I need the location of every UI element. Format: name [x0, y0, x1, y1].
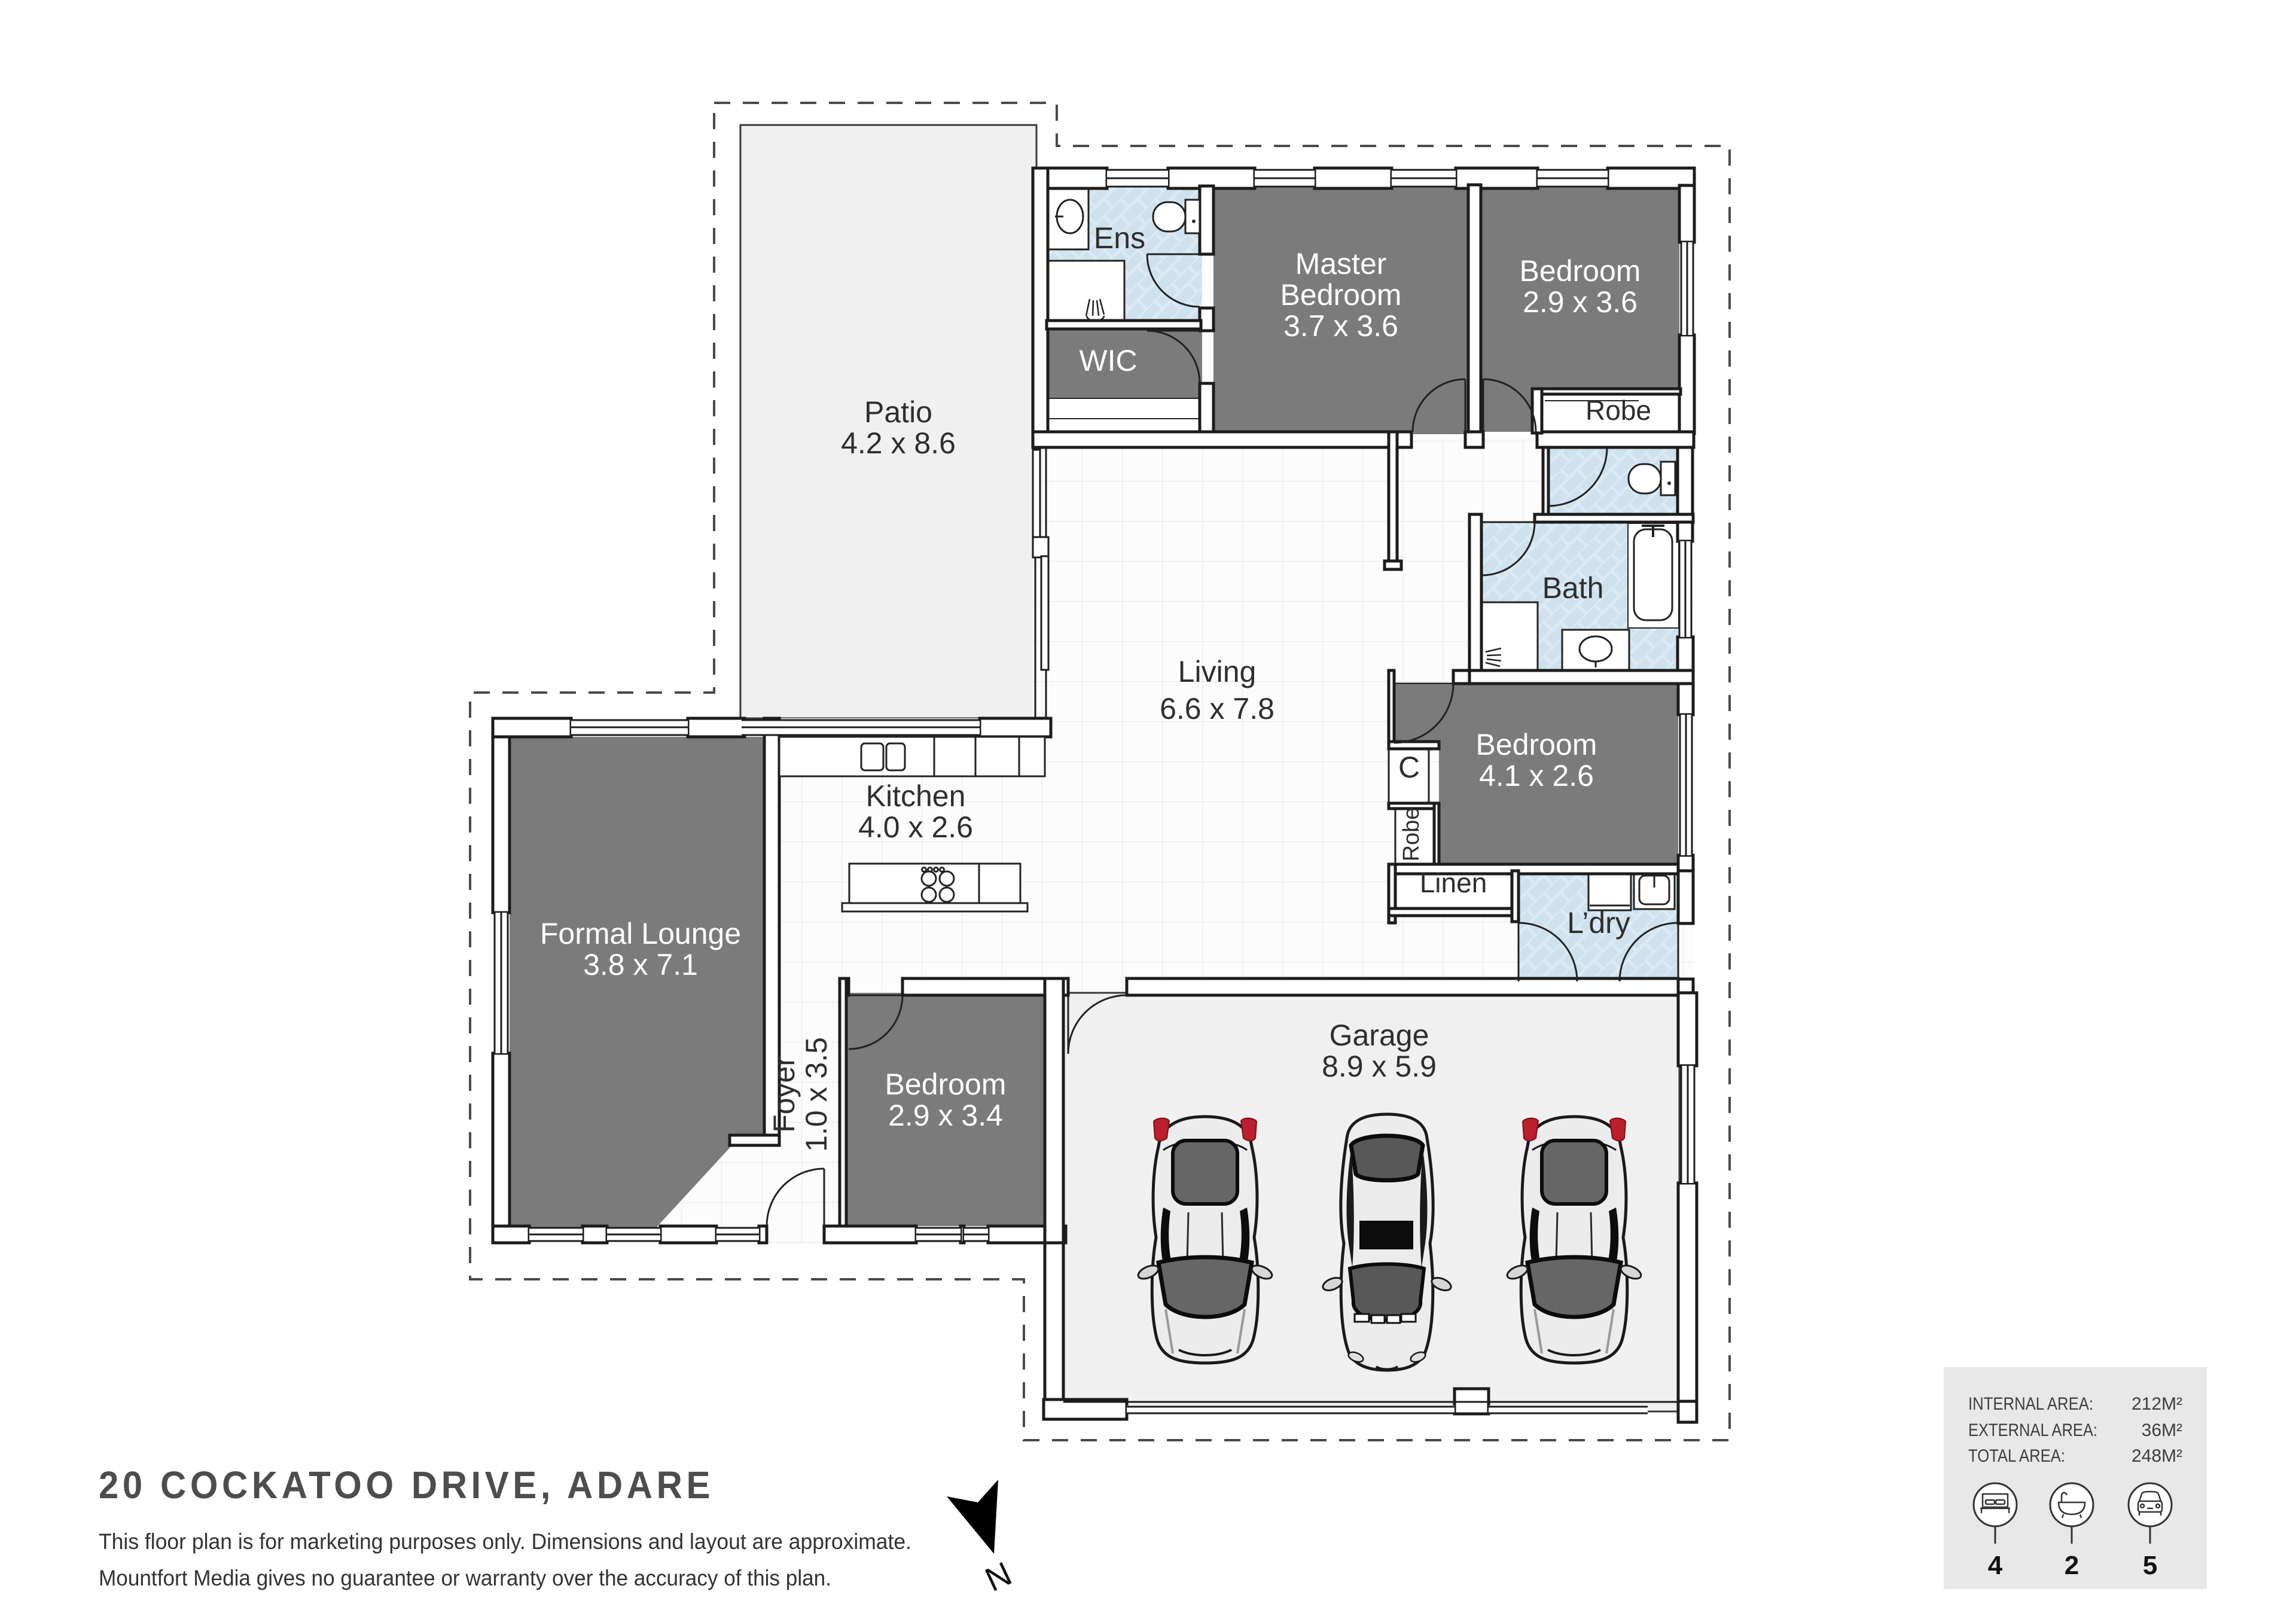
svg-text:INTERNAL AREA:: INTERNAL AREA:: [1968, 1394, 2093, 1414]
svg-text:3.7 x 3.6: 3.7 x 3.6: [1283, 309, 1398, 343]
svg-text:Garage: Garage: [1330, 1019, 1429, 1052]
svg-text:Master: Master: [1295, 247, 1387, 280]
svg-text:Living: Living: [1178, 655, 1257, 688]
svg-text:Bedroom: Bedroom: [885, 1068, 1007, 1101]
svg-text:36M²: 36M²: [2142, 1420, 2182, 1440]
svg-text:Bedroom: Bedroom: [1520, 254, 1641, 288]
svg-text:This floor plan is for marketi: This floor plan is for marketing purpose…: [99, 1529, 911, 1554]
svg-text:Formal Lounge: Formal Lounge: [540, 917, 741, 950]
svg-text:248M²: 248M²: [2132, 1446, 2182, 1466]
svg-text:Bedroom: Bedroom: [1476, 728, 1597, 761]
svg-text:8.9 x 5.9: 8.9 x 5.9: [1322, 1050, 1437, 1083]
svg-text:3.8 x 7.1: 3.8 x 7.1: [583, 948, 698, 981]
svg-text:1.0 x 3.5: 1.0 x 3.5: [800, 1037, 833, 1152]
svg-text:4: 4: [1988, 1551, 2003, 1580]
svg-text:20 COCKATOO DRIVE, ADARE: 20 COCKATOO DRIVE, ADARE: [99, 1463, 714, 1507]
svg-text:Bath: Bath: [1542, 571, 1604, 605]
svg-text:Robe: Robe: [1585, 395, 1651, 426]
svg-text:2: 2: [2065, 1551, 2079, 1580]
svg-text:6.6 x 7.8: 6.6 x 7.8: [1160, 692, 1274, 725]
svg-text:4.2 x 8.6: 4.2 x 8.6: [841, 426, 956, 460]
svg-text:Ens: Ens: [1094, 221, 1145, 255]
svg-text:4.1 x 2.6: 4.1 x 2.6: [1479, 759, 1594, 792]
svg-text:L’dry: L’dry: [1567, 906, 1630, 940]
svg-text:Patio: Patio: [864, 395, 932, 429]
svg-text:Mountfort Media gives no guara: Mountfort Media gives no guarantee or wa…: [99, 1566, 831, 1590]
svg-text:2.9 x 3.6: 2.9 x 3.6: [1523, 285, 1638, 319]
svg-text:5: 5: [2143, 1551, 2157, 1580]
svg-text:Bedroom: Bedroom: [1280, 278, 1402, 312]
svg-text:Linen: Linen: [1420, 867, 1487, 898]
svg-text:C: C: [1398, 751, 1420, 784]
svg-text:EXTERNAL AREA:: EXTERNAL AREA:: [1968, 1420, 2097, 1440]
svg-text:212M²: 212M²: [2132, 1394, 2182, 1414]
svg-text:TOTAL AREA:: TOTAL AREA:: [1968, 1446, 2065, 1466]
svg-text:4.0 x 2.6: 4.0 x 2.6: [858, 810, 973, 844]
svg-text:Robe: Robe: [1399, 807, 1424, 862]
svg-text:Foyer: Foyer: [767, 1056, 801, 1133]
svg-text:WIC: WIC: [1079, 344, 1137, 377]
svg-text:2.9 x 3.4: 2.9 x 3.4: [888, 1099, 1003, 1132]
svg-text:Kitchen: Kitchen: [866, 779, 966, 813]
